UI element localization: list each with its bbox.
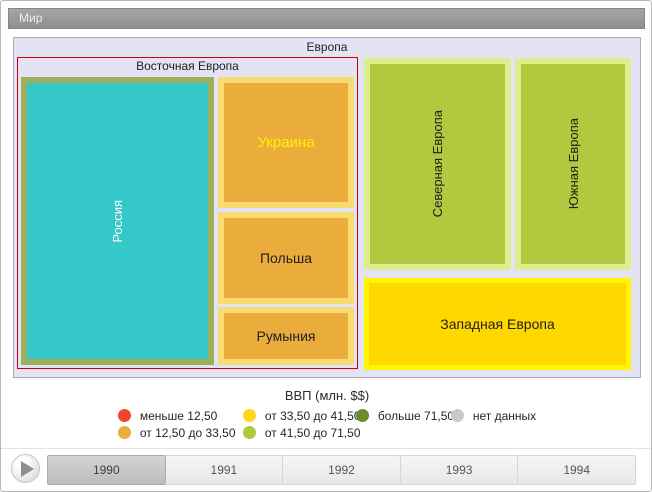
tile-western-europe-fill: Западная Европа <box>369 283 626 365</box>
play-button[interactable] <box>11 454 40 483</box>
tile-poland-fill: Польша <box>224 218 348 298</box>
legend-color-dot <box>118 426 131 439</box>
tile-poland[interactable]: Польша <box>218 212 354 304</box>
legend-item-label: от 12,50 до 33,50 <box>140 426 236 440</box>
legend: ВВП (млн. $$) меньше 12,50 от 12,50 до 3… <box>1 388 652 441</box>
tile-ukraine[interactable]: Украина <box>218 77 354 208</box>
tile-romania-fill: Румыния <box>224 313 348 359</box>
tile-western-europe-label: Западная Европа <box>440 316 554 332</box>
group-europe-label: Европа <box>14 38 640 56</box>
year-track: 1990 1991 1992 1993 1994 <box>47 455 636 485</box>
legend-item-more-71-50: больше 71,50 <box>356 407 451 424</box>
tile-romania[interactable]: Румыния <box>218 307 354 365</box>
tile-poland-label: Польша <box>260 250 312 266</box>
tile-southern-europe[interactable]: Южная Европа <box>515 58 631 270</box>
tile-southern-europe-label: Южная Европа <box>566 118 581 209</box>
legend-item-label: нет данных <box>473 409 536 423</box>
legend-color-dot <box>243 409 256 422</box>
legend-item-41-50-71-50: от 41,50 до 71,50 <box>243 424 356 441</box>
tile-northern-europe[interactable]: Северная Европа <box>364 58 511 270</box>
treemap-widget: Мир Европа Восточная Европа Россия Украи… <box>0 0 652 492</box>
group-eastern-europe-label: Восточная Европа <box>18 58 357 75</box>
tile-northern-europe-label: Северная Европа <box>430 110 445 217</box>
tile-russia-fill: Россия <box>27 83 208 359</box>
tile-ukraine-fill: Украина <box>224 83 348 202</box>
legend-color-dot <box>356 409 369 422</box>
legend-item-12-50-33-50: от 12,50 до 33,50 <box>118 424 243 441</box>
tile-western-europe[interactable]: Западная Европа <box>364 278 631 370</box>
legend-grid: меньше 12,50 от 12,50 до 33,50 от 33,50 … <box>118 407 536 441</box>
legend-item-no-data: нет данных <box>451 407 536 424</box>
year-button-1991[interactable]: 1991 <box>165 455 284 485</box>
legend-item-less-12-50: меньше 12,50 <box>118 407 243 424</box>
tile-romania-label: Румыния <box>256 328 315 344</box>
tile-southern-europe-fill: Южная Европа <box>521 64 625 264</box>
legend-color-dot <box>118 409 131 422</box>
legend-color-dot <box>243 426 256 439</box>
year-button-1990[interactable]: 1990 <box>47 455 166 485</box>
tile-northern-europe-fill: Северная Европа <box>370 64 505 264</box>
legend-item-label: от 41,50 до 71,50 <box>265 426 361 440</box>
legend-item-label: меньше 12,50 <box>140 409 217 423</box>
tile-russia[interactable]: Россия <box>21 77 214 365</box>
year-button-1994[interactable]: 1994 <box>517 455 636 485</box>
tile-russia-label: Россия <box>110 200 125 243</box>
legend-item-33-50-41-50: от 33,50 до 41,50 <box>243 407 356 424</box>
breadcrumb-world[interactable]: Мир <box>8 8 645 29</box>
legend-color-dot <box>451 409 464 422</box>
legend-item-label: больше 71,50 <box>378 409 454 423</box>
play-icon <box>21 461 34 477</box>
legend-title: ВВП (млн. $$) <box>1 388 652 403</box>
tile-ukraine-label: Украина <box>257 134 314 151</box>
year-button-1993[interactable]: 1993 <box>400 455 519 485</box>
timeline: 1990 1991 1992 1993 1994 <box>1 448 652 492</box>
year-button-1992[interactable]: 1992 <box>282 455 401 485</box>
legend-item-label: от 33,50 до 41,50 <box>265 409 361 423</box>
